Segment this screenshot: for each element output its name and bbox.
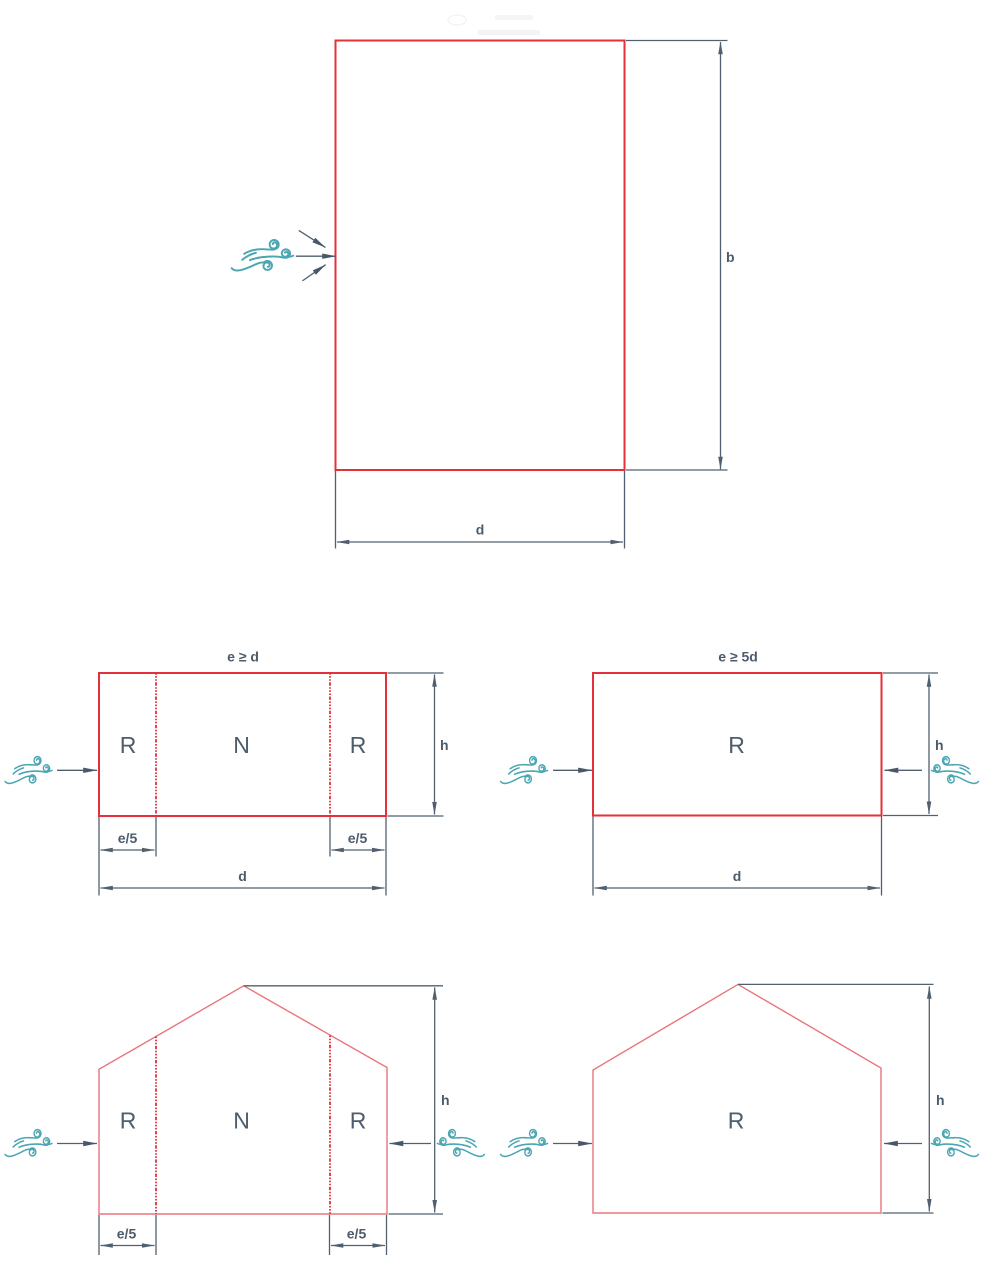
svg-text:b: b bbox=[726, 249, 735, 265]
svg-text:h: h bbox=[441, 1092, 450, 1108]
svg-text:R: R bbox=[350, 1108, 367, 1134]
svg-text:e/5: e/5 bbox=[118, 830, 138, 846]
svg-text:R: R bbox=[350, 732, 367, 758]
svg-text:R: R bbox=[120, 1108, 137, 1134]
svg-text:R: R bbox=[728, 732, 745, 758]
svg-text:d: d bbox=[238, 868, 247, 884]
svg-text:e ≥ 5d: e ≥ 5d bbox=[718, 649, 758, 665]
svg-text:e/5: e/5 bbox=[348, 830, 368, 846]
svg-text:N: N bbox=[233, 1108, 250, 1134]
svg-text:d: d bbox=[733, 868, 742, 884]
svg-text:h: h bbox=[935, 737, 944, 753]
svg-text:d: d bbox=[476, 522, 485, 538]
svg-text:e/5: e/5 bbox=[347, 1226, 367, 1242]
svg-text:N: N bbox=[233, 732, 250, 758]
svg-text:h: h bbox=[936, 1092, 945, 1108]
svg-text:e ≥ d: e ≥ d bbox=[227, 649, 259, 665]
svg-text:R: R bbox=[728, 1108, 745, 1134]
svg-text:e/5: e/5 bbox=[117, 1226, 137, 1242]
svg-text:h: h bbox=[440, 737, 449, 753]
svg-text:R: R bbox=[120, 732, 137, 758]
